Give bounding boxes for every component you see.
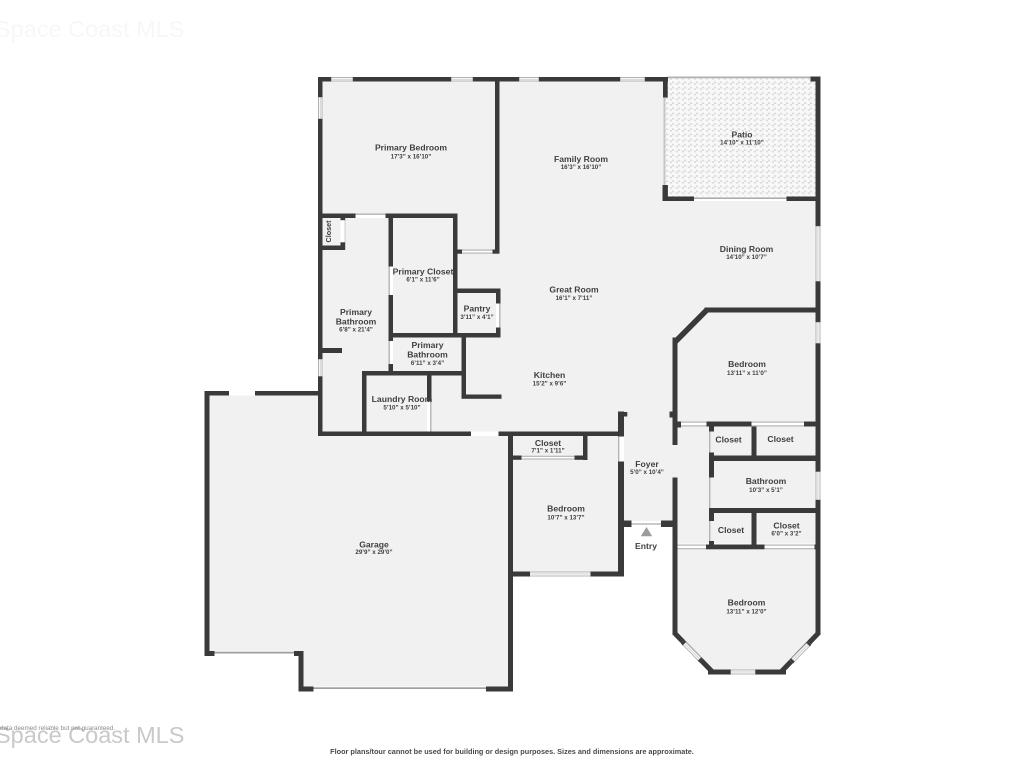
svg-text:6’1” x 11’6”: 6’1” x 11’6” (406, 277, 439, 284)
svg-text:data deemed reliable but not g: data deemed reliable but not guaranteed. (0, 725, 115, 732)
svg-text:Family Room: Family Room (554, 154, 608, 164)
svg-text:16’3” x 16’10”: 16’3” x 16’10” (561, 164, 602, 171)
svg-text:Closet: Closet (715, 434, 741, 444)
svg-text:5’10” x 5’10”: 5’10” x 5’10” (383, 404, 420, 411)
svg-text:6’11” x 3’4”: 6’11” x 3’4” (411, 360, 444, 367)
svg-text:Closet: Closet (535, 438, 561, 448)
svg-text:Great Room: Great Room (549, 284, 599, 294)
svg-text:5’0” x 10’4”: 5’0” x 10’4” (630, 469, 664, 476)
svg-text:Bedroom: Bedroom (728, 597, 766, 607)
svg-text:Bedroom: Bedroom (547, 503, 585, 513)
svg-text:Bedroom: Bedroom (728, 359, 766, 369)
svg-text:Floor plans/tour cannot be use: Floor plans/tour cannot be used for buil… (330, 747, 694, 756)
svg-text:Primary: Primary (340, 307, 372, 317)
svg-text:Closet: Closet (773, 520, 799, 530)
svg-text:17’3” x 16’10”: 17’3” x 16’10” (391, 154, 432, 161)
svg-text:15’2” x 9’6”: 15’2” x 9’6” (533, 380, 567, 387)
svg-text:29’9” x 29’0”: 29’9” x 29’0” (355, 549, 392, 556)
svg-text:Closet: Closet (718, 525, 744, 535)
svg-text:6’8” x 21’4”: 6’8” x 21’4” (339, 327, 373, 334)
svg-text:Laundry Room: Laundry Room (372, 394, 433, 404)
svg-text:10’3” x 5’1”: 10’3” x 5’1” (749, 487, 783, 494)
svg-text:Bathroom: Bathroom (746, 476, 787, 486)
svg-text:13’11” x 11’0”: 13’11” x 11’0” (727, 370, 767, 377)
svg-text:Patio: Patio (731, 129, 752, 139)
svg-text:Closet: Closet (324, 220, 333, 243)
svg-text:7’1” x 1’11”: 7’1” x 1’11” (531, 447, 564, 454)
svg-text:Entry: Entry (635, 541, 657, 551)
svg-text:Foyer: Foyer (635, 459, 659, 469)
svg-text:Pantry: Pantry (464, 303, 491, 313)
svg-text:14’10” x 10’7”: 14’10” x 10’7” (726, 254, 767, 261)
svg-text:6’0” x 3’2”: 6’0” x 3’2” (771, 531, 801, 538)
svg-text:Primary Closet: Primary Closet (393, 266, 454, 276)
svg-text:Primary: Primary (411, 340, 443, 350)
svg-text:14’10” x 11’10”: 14’10” x 11’10” (720, 140, 764, 147)
svg-text:16’1” x 7’11”: 16’1” x 7’11” (556, 295, 593, 302)
svg-text:3’11” x 4’1”: 3’11” x 4’1” (460, 314, 493, 321)
svg-text:Kitchen: Kitchen (534, 370, 566, 380)
svg-text:Primary Bedroom: Primary Bedroom (375, 142, 447, 152)
svg-text:Closet: Closet (767, 434, 793, 444)
svg-text:Bathroom: Bathroom (407, 349, 448, 359)
svg-text:Space Coast MLS: Space Coast MLS (0, 16, 184, 42)
svg-text:13’11” x 12’0”: 13’11” x 12’0” (726, 609, 766, 616)
svg-text:Bathroom: Bathroom (336, 316, 377, 326)
svg-text:Garage: Garage (359, 539, 389, 549)
svg-text:Dining Room: Dining Room (720, 244, 774, 254)
svg-text:10’7” x 13’7”: 10’7” x 13’7” (547, 515, 584, 522)
